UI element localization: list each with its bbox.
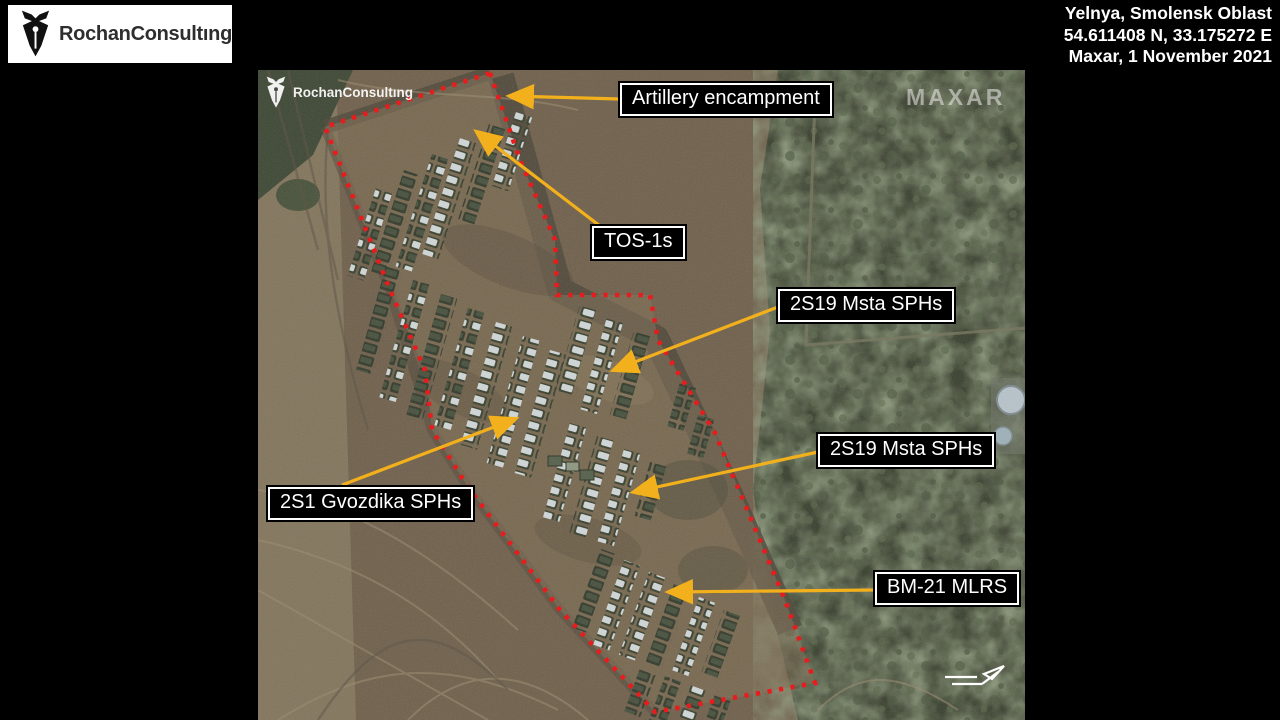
logo-text: RochanConsultıng (59, 23, 232, 46)
annotation-overlay (258, 70, 1025, 720)
location-name: Yelnya, Smolensk Oblast (1064, 3, 1272, 25)
label-2s19-msta-sphs-upper: 2S19 Msta SPHs (778, 289, 954, 322)
location-block: Yelnya, Smolensk Oblast 54.611408 N, 33.… (1064, 3, 1272, 68)
pen-nib-icon (18, 9, 53, 59)
image-source-date: Maxar, 1 November 2021 (1064, 46, 1272, 68)
slide: RochanConsultıng Yelnya, Smolensk Oblast… (0, 0, 1280, 720)
label-2s1-gvozdika-sphs: 2S1 Gvozdika SPHs (268, 487, 473, 520)
north-arrow-icon (945, 666, 1004, 684)
rochan-watermark: RochanConsultıng (264, 76, 413, 109)
label-artillery-encampment: Artillery encampment (620, 83, 832, 116)
location-coordinates: 54.611408 N, 33.175272 E (1064, 25, 1272, 47)
label-bm-21-mlrs: BM-21 MLRS (875, 572, 1019, 605)
rochan-logo: RochanConsultıng (8, 5, 232, 63)
label-2s19-msta-sphs-lower: 2S19 Msta SPHs (818, 434, 994, 467)
watermark-text: RochanConsultıng (293, 85, 413, 100)
maxar-watermark: MAXAR (906, 84, 1005, 111)
satellite-image: RochanConsultıng MAXAR Artillery encampm… (258, 70, 1025, 720)
encampment-outline (325, 73, 815, 712)
pen-nib-watermark-icon (264, 76, 288, 109)
label-tos-1s: TOS-1s (592, 226, 685, 259)
